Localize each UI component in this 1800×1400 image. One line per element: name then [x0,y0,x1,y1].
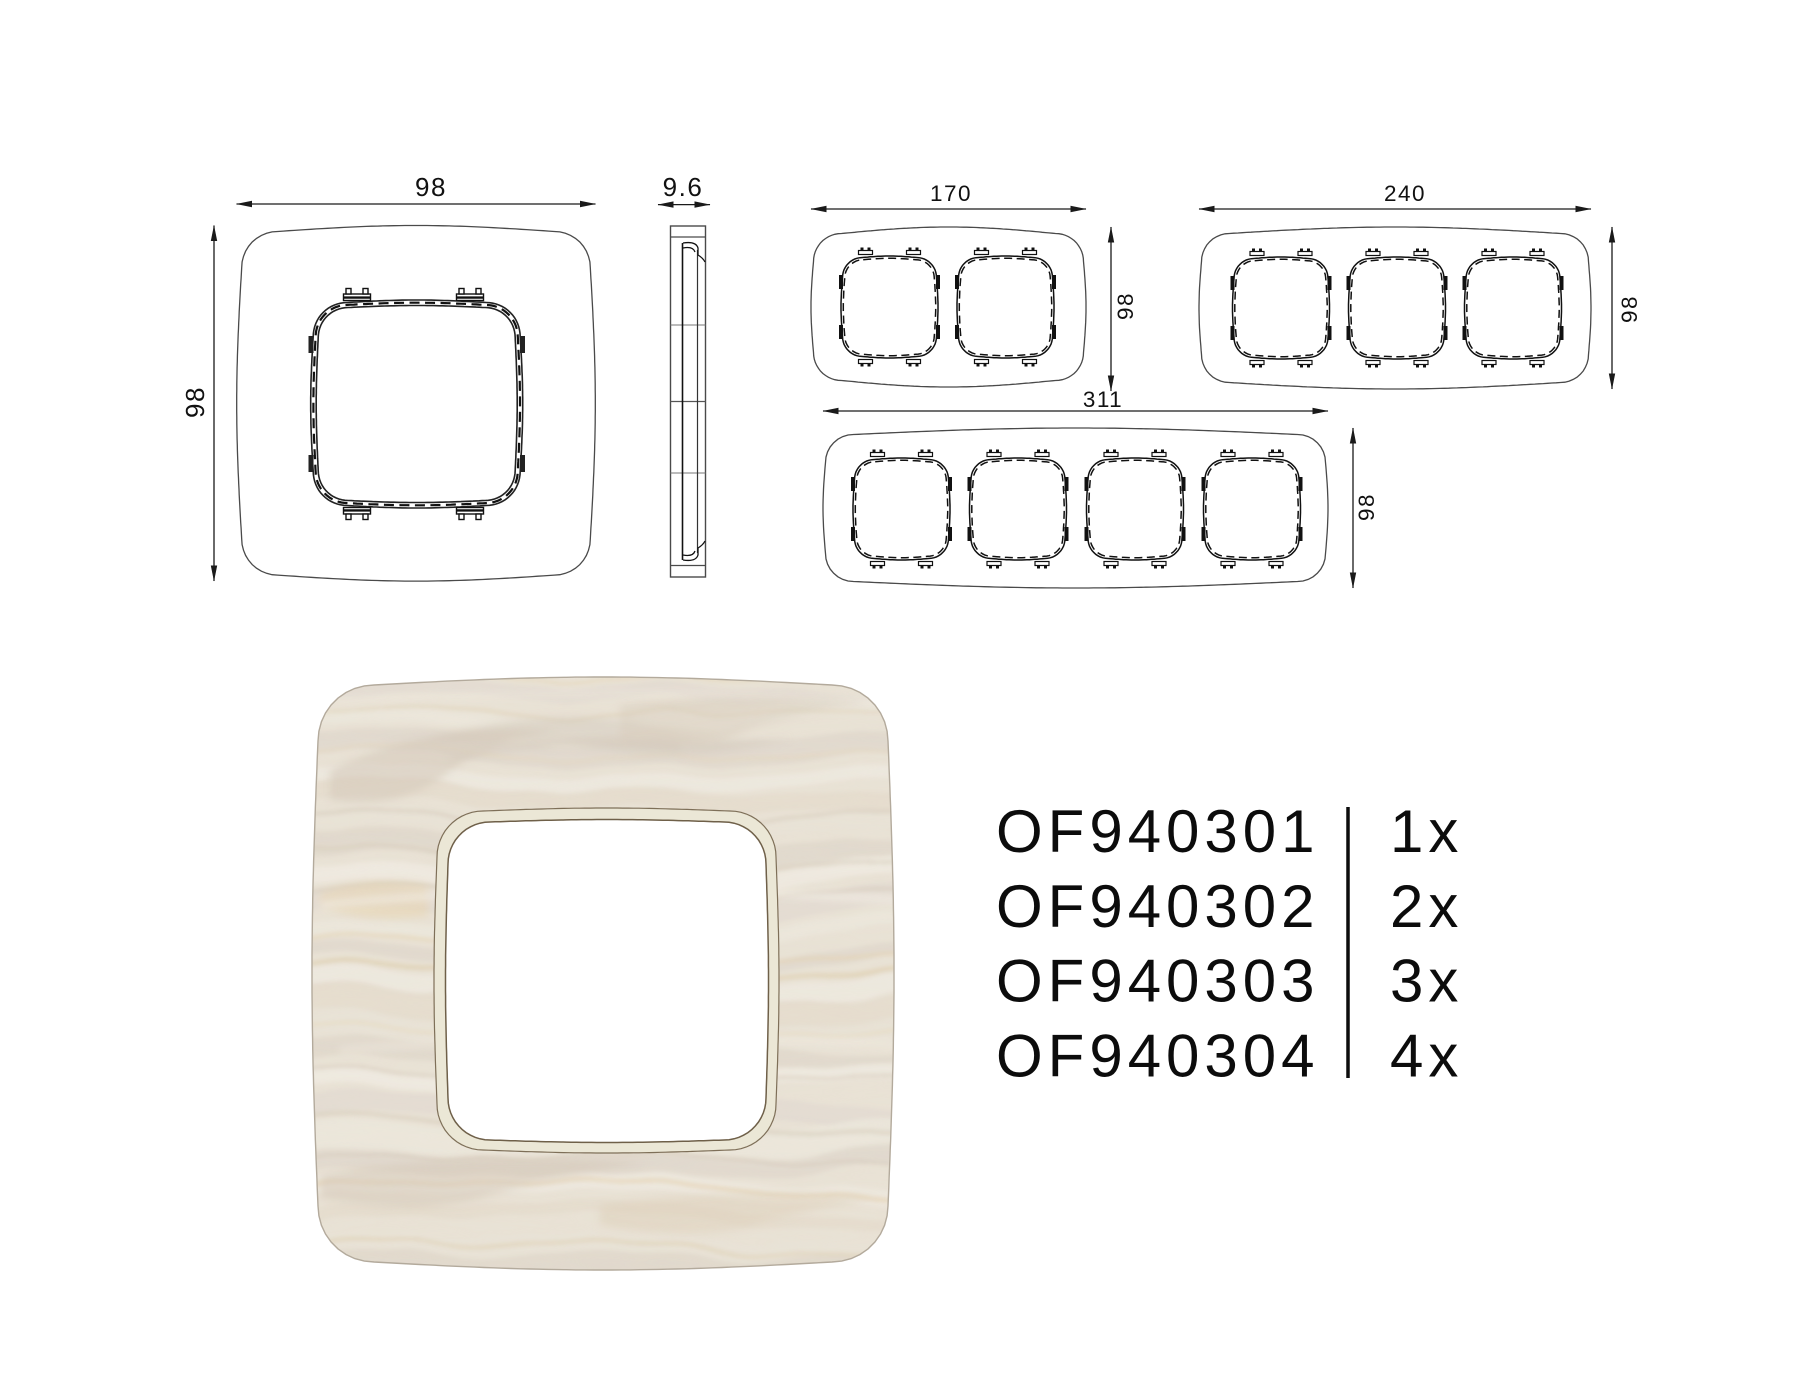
svg-text:98: 98 [415,172,447,202]
svg-text:4x: 4x [1390,1022,1463,1089]
svg-text:OF940302: OF940302 [996,873,1320,940]
svg-text:240: 240 [1384,181,1426,206]
svg-text:98: 98 [1113,292,1138,320]
svg-text:OF940303: OF940303 [996,948,1320,1015]
svg-text:98: 98 [1354,493,1379,521]
svg-text:2x: 2x [1390,873,1463,940]
svg-text:OF940301: OF940301 [996,798,1320,865]
svg-text:1x: 1x [1390,798,1463,865]
svg-text:170: 170 [930,181,972,206]
svg-text:311: 311 [1083,387,1123,412]
svg-text:98: 98 [180,386,210,418]
svg-text:9.6: 9.6 [663,172,704,202]
svg-text:OF940304: OF940304 [996,1022,1320,1089]
svg-text:98: 98 [1617,295,1642,323]
svg-text:3x: 3x [1390,948,1463,1015]
